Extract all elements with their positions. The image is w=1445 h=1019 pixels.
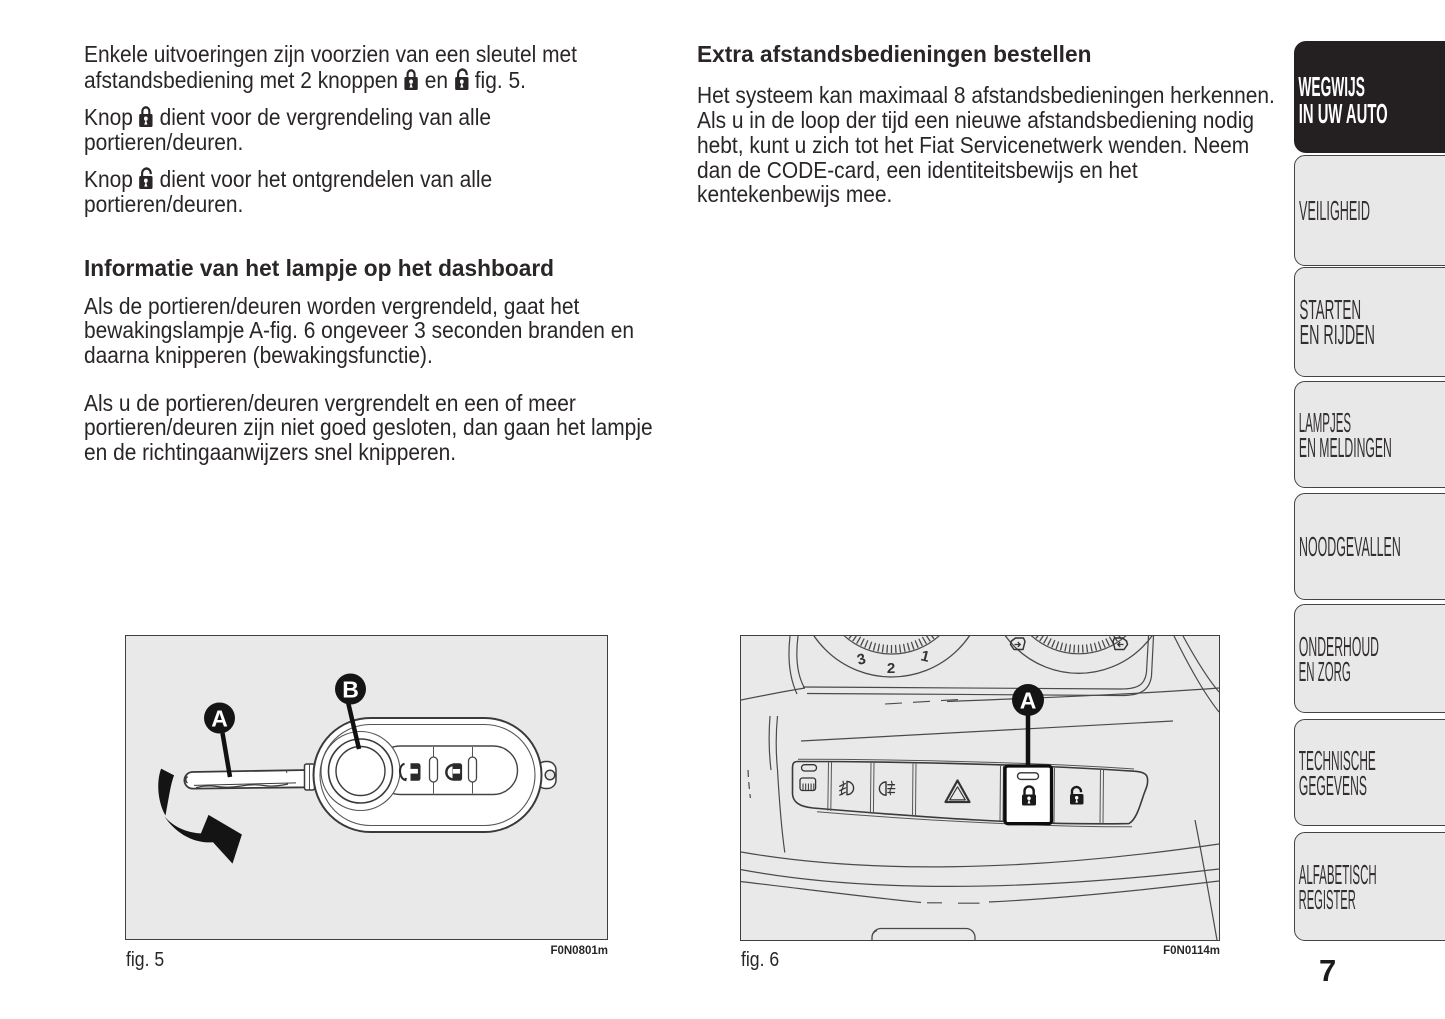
svg-text:2: 2 xyxy=(887,660,895,677)
svg-text:1: 1 xyxy=(919,647,931,666)
svg-text:3: 3 xyxy=(855,650,867,669)
svg-text:A: A xyxy=(1020,688,1037,714)
svg-text:B: B xyxy=(342,677,359,703)
svg-text:A: A xyxy=(211,706,228,732)
